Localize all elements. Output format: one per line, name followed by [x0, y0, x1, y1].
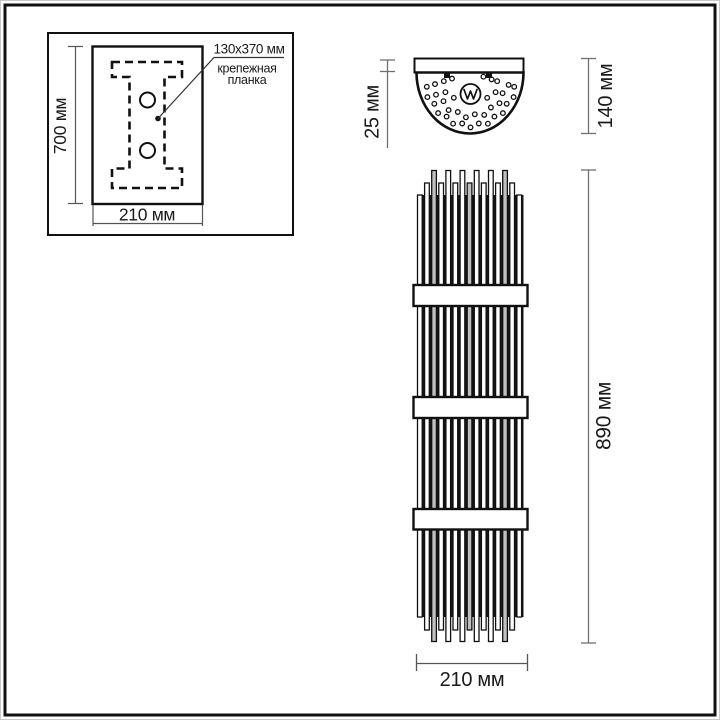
dimension-drawing: 130x370 мм крепежная планка 700 мм 210 м… — [0, 0, 720, 720]
brand-wave-logo-icon — [461, 84, 481, 104]
metal-band-bottom — [414, 509, 528, 530]
inset-height-dim-label: 700 мм — [50, 98, 70, 154]
mounting-plate-panel: 130x370 мм крепежная планка 700 мм 210 м… — [48, 33, 293, 235]
callout-text-line2: планка — [228, 73, 267, 87]
drawing-canvas: 130x370 мм крепежная планка 700 мм 210 м… — [0, 0, 720, 720]
metal-band-middle — [414, 397, 528, 418]
inset-width-dim-label: 210 мм — [119, 205, 175, 225]
callout-size-label: 130x370 мм — [213, 42, 284, 57]
top-view-wall-strip — [415, 59, 524, 73]
wall-plate-outline — [93, 47, 203, 205]
screw-hole-circle-icon — [140, 143, 155, 158]
plate-depth-dim-label: 25 мм — [362, 85, 384, 139]
screw-mark-icon — [444, 72, 450, 79]
lamp-height-dim-label: 890 мм — [593, 382, 616, 450]
total-depth-dim-label: 140 мм — [595, 64, 617, 129]
lamp-width-dim-label: 210 мм — [440, 669, 505, 691]
screw-mark-icon — [486, 72, 492, 79]
metal-band-top — [414, 285, 528, 306]
screw-hole-circle-icon — [140, 93, 155, 108]
